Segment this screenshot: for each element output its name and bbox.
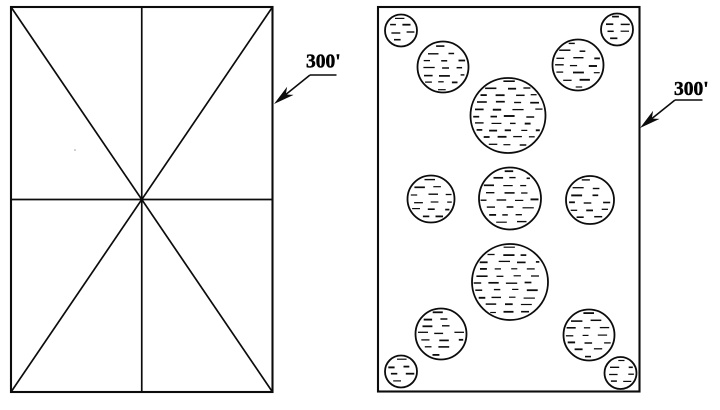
svg-text:300': 300' — [306, 52, 341, 73]
svg-text:300': 300' — [674, 79, 709, 100]
